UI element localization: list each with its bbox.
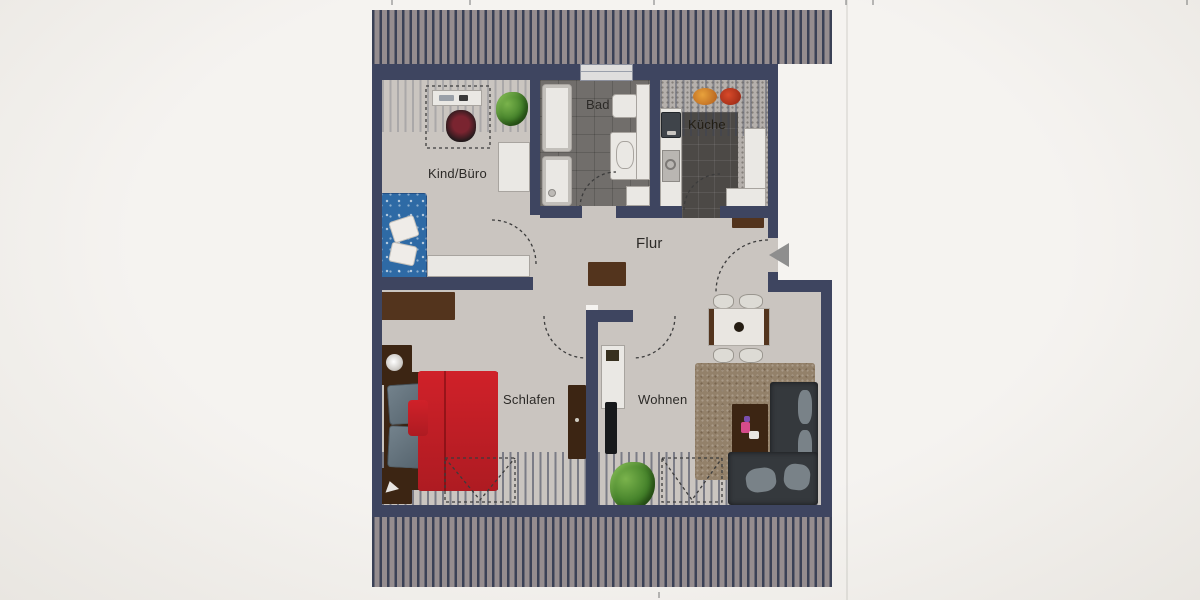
wall-kind-schlafen — [372, 277, 533, 290]
wall-exterior-right-upper — [768, 64, 778, 238]
dormer-zone-desk — [426, 86, 490, 148]
wall-schlafen-wohnen — [586, 310, 598, 505]
dormer-window-wohnen-lines — [662, 458, 722, 500]
wall-bad-kueche — [650, 80, 660, 218]
room-label-kueche: Küche — [688, 117, 726, 132]
dormer-window-wohnen — [662, 458, 722, 502]
door-arc-entrance — [716, 240, 768, 292]
scanned-page: Kind/Büro Bad Küche Flur Schlafen Wohnen — [0, 0, 1200, 600]
dormer-window-schlafen-lines — [445, 458, 515, 500]
room-label-wohnen: Wohnen — [638, 392, 687, 407]
wall-exterior-bottom — [372, 505, 832, 517]
room-label-kind-buero: Kind/Büro — [428, 166, 487, 181]
room-label-schlafen: Schlafen — [503, 392, 555, 407]
door-arc-schlafen — [544, 316, 586, 358]
entrance-arrow-icon — [769, 243, 789, 267]
scan-tick-mark — [872, 0, 874, 5]
wall-step — [768, 280, 832, 292]
door-arc-bad — [580, 172, 616, 208]
bathroom-window — [580, 64, 633, 81]
wall-hall-top-1 — [540, 206, 582, 218]
wall-hall-top-2 — [616, 206, 682, 218]
room-label-bad: Bad — [586, 97, 610, 112]
wall-exterior-top — [372, 64, 778, 80]
room-label-flur: Flur — [636, 235, 663, 252]
door-arc-wohnen — [633, 316, 675, 358]
door-arc-kueche — [684, 174, 720, 210]
page-crease — [846, 0, 848, 600]
floor-plan: Kind/Büro Bad Küche Flur Schlafen Wohnen — [370, 0, 832, 600]
wall-hall-top-3 — [720, 206, 768, 218]
wall-exterior-right-lower — [821, 292, 832, 505]
dormer-window-schlafen — [445, 458, 515, 502]
wall-exterior-left — [372, 64, 382, 517]
wall-kind-bad — [530, 80, 540, 215]
scan-tick-mark — [1186, 0, 1188, 5]
door-arc-kind-buero — [492, 220, 536, 264]
